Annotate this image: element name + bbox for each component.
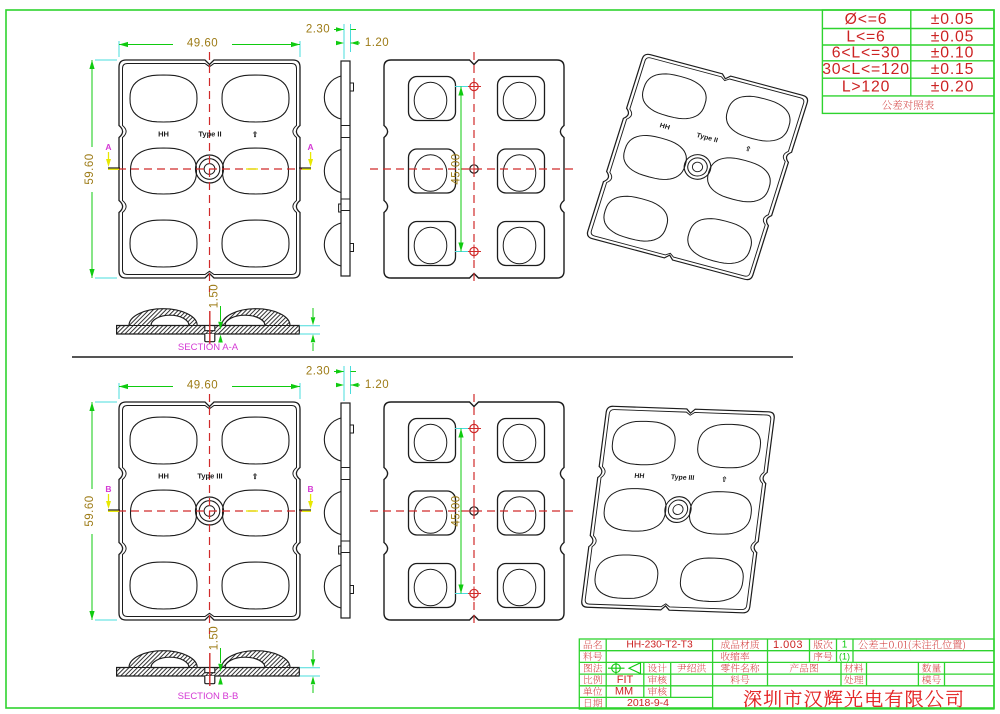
svg-text:L>120: L>120 — [842, 79, 890, 96]
svg-text:±0.10: ±0.10 — [931, 44, 974, 61]
svg-text:Type III: Type III — [197, 472, 222, 481]
svg-text:HH-230-T2-T3: HH-230-T2-T3 — [626, 639, 693, 650]
svg-text:B: B — [105, 484, 111, 494]
svg-text:1: 1 — [842, 639, 848, 650]
svg-text:(1): (1) — [839, 652, 850, 662]
svg-text:HH: HH — [158, 472, 169, 481]
svg-text:HH: HH — [158, 130, 169, 139]
svg-text:A: A — [105, 142, 111, 152]
svg-text:A: A — [308, 142, 314, 152]
svg-text:HH: HH — [634, 473, 645, 480]
svg-text:±0.05: ±0.05 — [931, 28, 974, 45]
svg-text:FIT: FIT — [617, 674, 634, 686]
svg-text:SECTION B-B: SECTION B-B — [178, 691, 239, 702]
svg-text:MM: MM — [615, 686, 633, 698]
svg-text:1.003: 1.003 — [773, 639, 803, 651]
svg-text:SECTION A-A: SECTION A-A — [178, 342, 239, 353]
svg-text:⇧: ⇧ — [252, 472, 258, 481]
svg-text:30<L<=120: 30<L<=120 — [822, 61, 910, 78]
svg-text:⇧: ⇧ — [252, 130, 258, 139]
svg-text:⇧: ⇧ — [721, 475, 728, 483]
svg-text:±0.05: ±0.05 — [931, 11, 974, 28]
svg-text:L<=6: L<=6 — [846, 28, 885, 45]
svg-text:2018-9-4: 2018-9-4 — [627, 697, 669, 709]
svg-text:B: B — [308, 484, 314, 494]
svg-text:±0.15: ±0.15 — [931, 61, 974, 78]
svg-text:±0.20: ±0.20 — [931, 79, 974, 96]
svg-text:Type II: Type II — [198, 130, 221, 139]
svg-text:Type III: Type III — [670, 474, 694, 482]
svg-text:Ø<=6: Ø<=6 — [845, 11, 888, 28]
svg-text:6<L<=30: 6<L<=30 — [832, 44, 900, 61]
